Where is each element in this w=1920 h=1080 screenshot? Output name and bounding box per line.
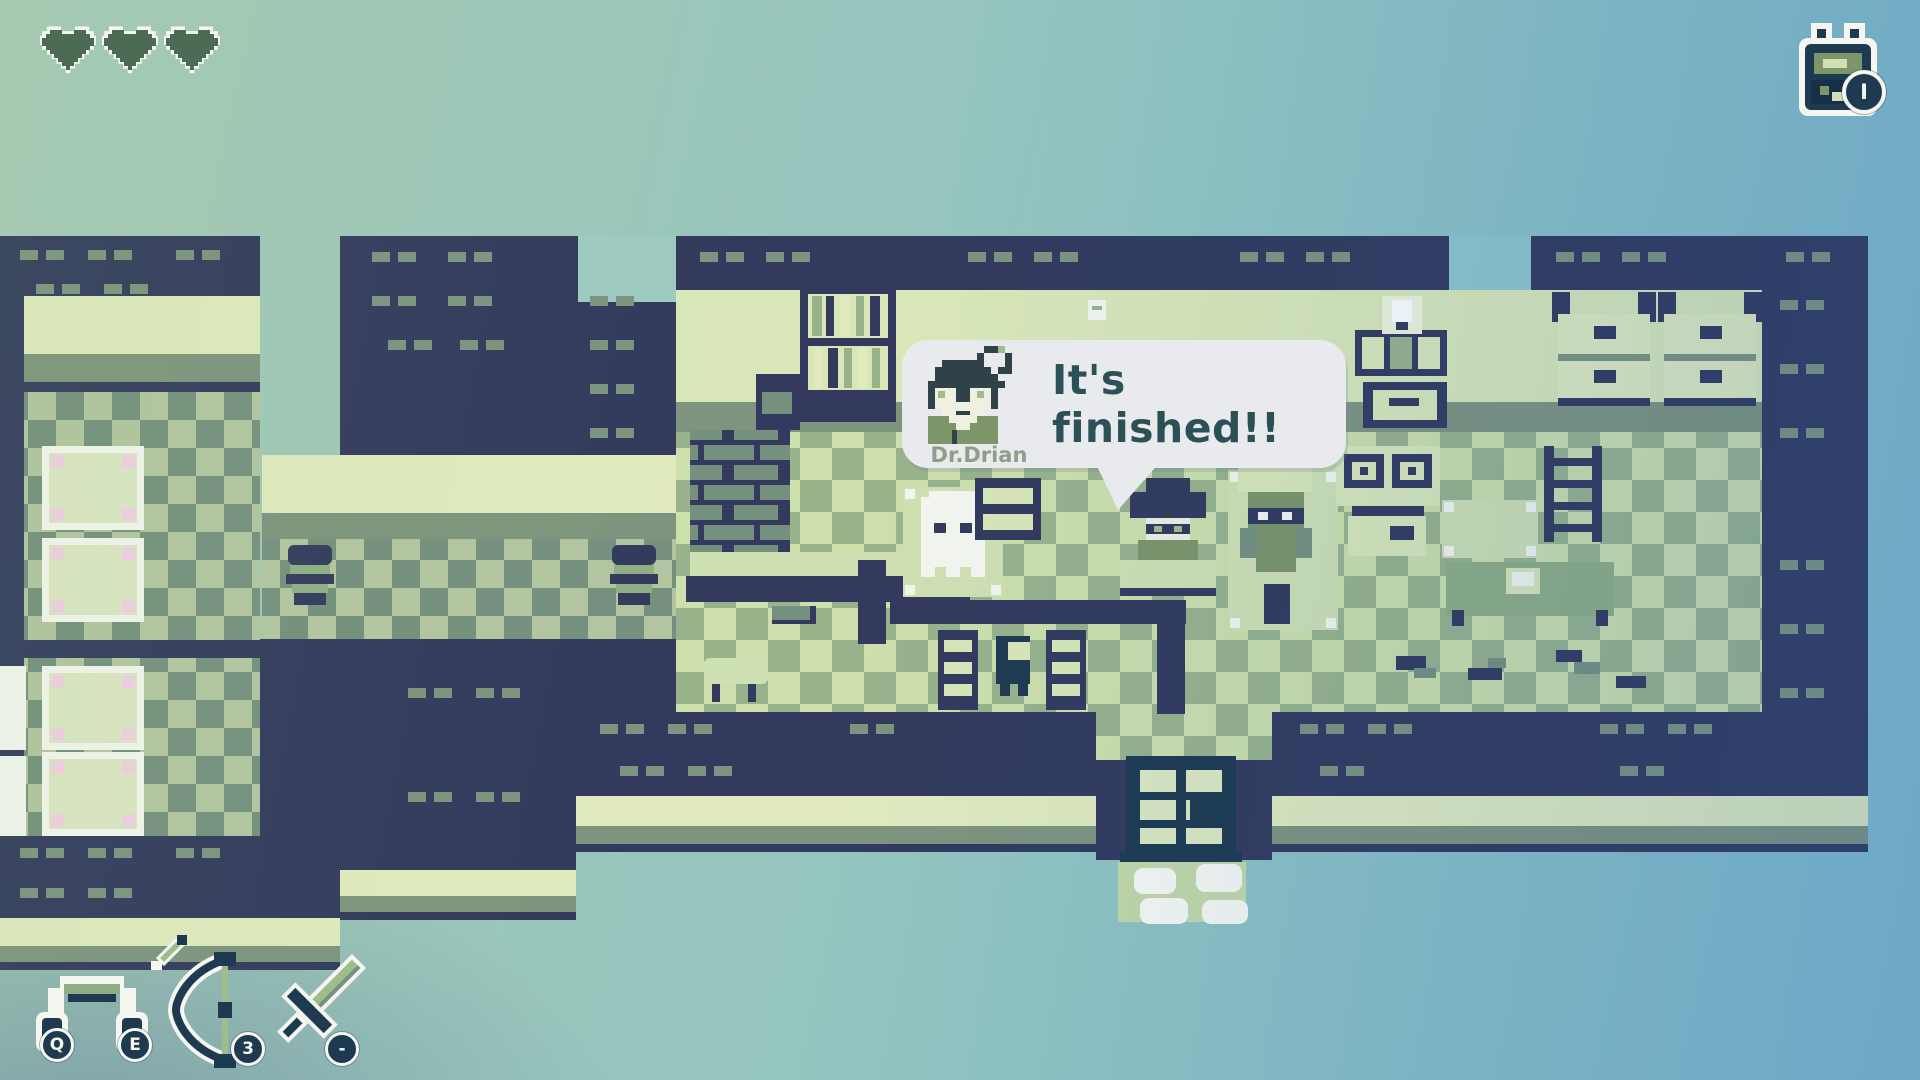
hotkey-badge-3[interactable]: 3 [231,1032,265,1066]
hotkey-label: - [338,1041,345,1058]
hotkey-label: E [129,1037,141,1054]
hotkey-badge-e[interactable]: E [118,1028,152,1062]
dialogue-speaker-name: Dr.Drian [908,443,1050,467]
hotkey-badge-minus[interactable]: - [325,1032,359,1066]
heart-icon [164,26,220,78]
inventory-hotkey-badge[interactable]: I [1842,70,1886,114]
heart-icon [40,26,96,78]
hotkey-label: Q [50,1037,64,1054]
dialogue-text: It's finished!! [1052,340,1348,468]
hotkey-badge-q[interactable]: Q [40,1028,74,1062]
hotkey-label: 3 [242,1041,254,1058]
inventory-hotkey-label: I [1860,82,1868,103]
dr-drian-portrait [0,0,1920,1080]
heart-icon [102,26,158,78]
health-hearts [40,26,220,78]
game-screen: { "hud": { "health": { "label": "hearts"… [0,0,1920,1080]
